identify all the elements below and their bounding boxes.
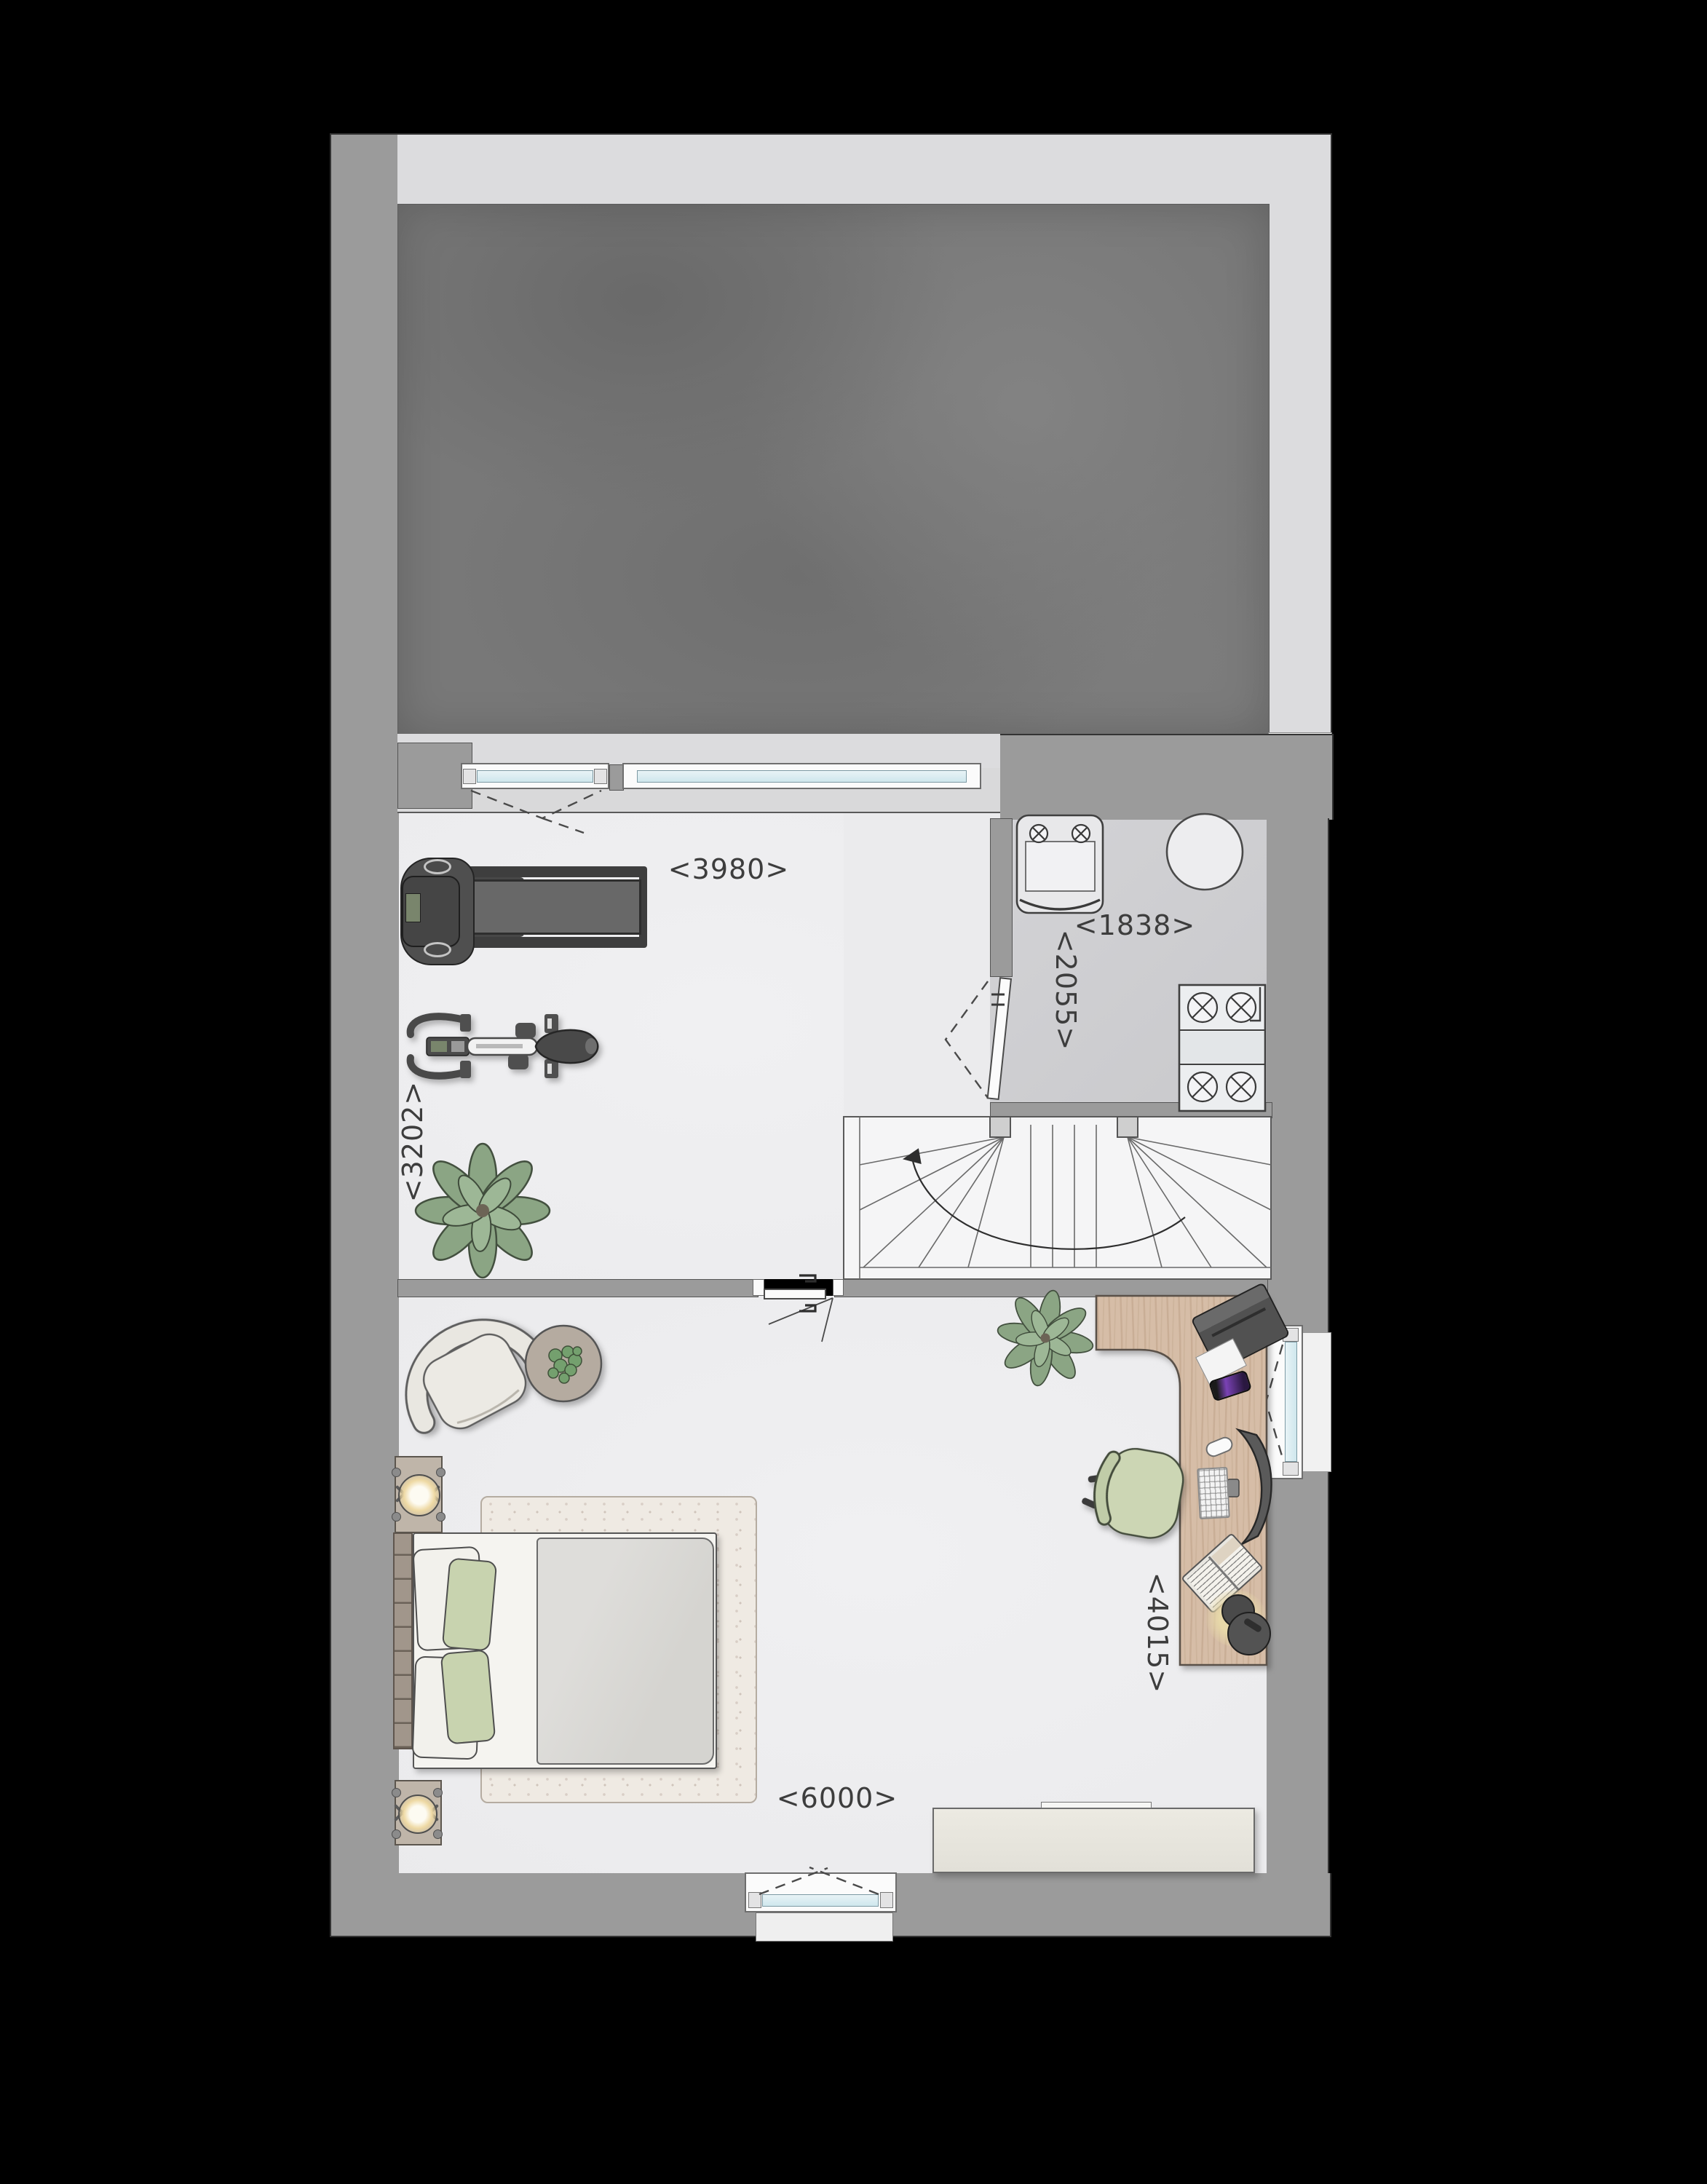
bedroom-window-swing-icon — [759, 1867, 879, 1894]
dim-office-depth: <4015> — [1141, 1572, 1173, 1693]
dim-gym-width: <3980> — [668, 853, 789, 885]
bedroom-door-leaf — [764, 1275, 833, 1342]
headphones-icon — [1201, 1587, 1281, 1660]
armchair-icon — [395, 1308, 549, 1444]
keyboard-icon — [1197, 1467, 1230, 1519]
floorplan-canvas: <3980> <3202> <1838> <2055> <4015> <6000… — [0, 0, 1707, 2184]
office-chair-icon — [1077, 1441, 1187, 1542]
laundry-door-swing-icon — [946, 981, 988, 1098]
exercise-bike-icon — [411, 1014, 598, 1078]
plant-icon — [996, 1289, 1094, 1387]
office-window-swing-icon — [1266, 1345, 1283, 1458]
terrace-door-swing-icon — [471, 791, 601, 833]
washer-dryer-stack-icon — [1179, 985, 1265, 1111]
dim-bedroom-width: <6000> — [777, 1782, 898, 1814]
plant-icon — [416, 1144, 550, 1278]
winder-stair-icon — [844, 1117, 1271, 1279]
dim-laundry-depth: <2055> — [1050, 930, 1082, 1051]
side-table-icon — [526, 1326, 601, 1401]
dim-gym-depth: <3202> — [397, 1081, 429, 1202]
laundry-door-leaf — [988, 978, 1011, 1099]
boiler-icon — [1167, 814, 1243, 890]
vector-layer — [0, 0, 1707, 2184]
dim-laundry-width: <1838> — [1074, 909, 1195, 941]
washbasin-icon — [1017, 815, 1103, 913]
